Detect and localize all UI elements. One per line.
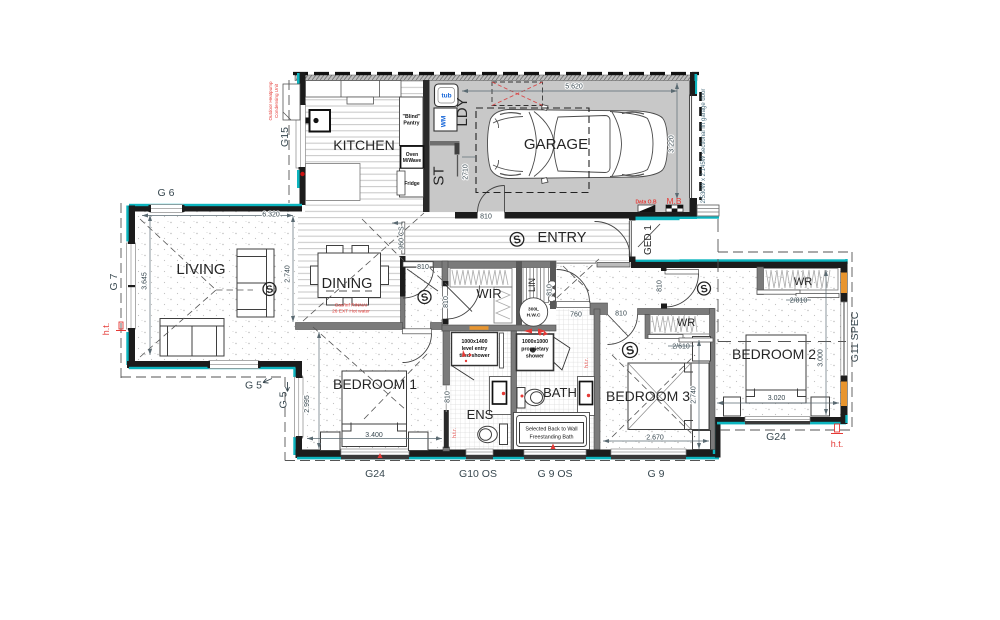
- svg-text:810: 810: [417, 264, 429, 271]
- svg-text:760: 760: [570, 312, 582, 319]
- svg-text:LIN: LIN: [527, 278, 537, 292]
- svg-text:G 7: G 7: [108, 273, 120, 290]
- svg-text:3.645: 3.645: [142, 272, 149, 290]
- svg-text:LDY: LDY: [454, 97, 471, 126]
- svg-text:WR: WR: [794, 276, 812, 288]
- svg-text:810: 810: [480, 214, 492, 221]
- svg-text:h.t.r.: h.t.r.: [584, 358, 590, 368]
- svg-text:2/530W x 2.145W sectional lift: 2/530W x 2.145W sectional lift garage do…: [701, 89, 707, 204]
- svg-text:G 6: G 6: [158, 187, 175, 199]
- svg-text:GED 1: GED 1: [643, 225, 654, 255]
- svg-text:BEDROOM 3: BEDROOM 3: [606, 388, 690, 404]
- svg-text:WR: WR: [677, 317, 695, 329]
- svg-text:3.000: 3.000: [818, 349, 825, 367]
- svg-text:G 9: G 9: [648, 468, 665, 480]
- svg-text:2/810: 2/810: [790, 298, 808, 305]
- svg-text:BEDROOM 1: BEDROOM 1: [333, 376, 417, 392]
- svg-text:WM: WM: [441, 116, 448, 128]
- svg-text:Selected Back to Wall: Selected Back to Wall: [525, 427, 577, 433]
- svg-text:810: 810: [657, 280, 664, 292]
- svg-text:Data O.B: Data O.B: [635, 200, 657, 206]
- svg-text:BATH: BATH: [543, 385, 577, 400]
- svg-text:Fridge: Fridge: [404, 181, 419, 187]
- svg-text:h.t.r.: h.t.r.: [452, 428, 458, 438]
- svg-text:2.670: 2.670: [646, 435, 664, 442]
- svg-text:KITCHEN: KITCHEN: [333, 137, 394, 153]
- svg-text:level entry: level entry: [462, 346, 488, 352]
- svg-text:BEDROOM 2: BEDROOM 2: [732, 346, 816, 362]
- svg-text:"Blind": "Blind": [403, 114, 421, 120]
- svg-text:Condensing Unit: Condensing Unit: [274, 83, 279, 118]
- svg-text:LIVING: LIVING: [176, 261, 225, 278]
- svg-text:G11 SPEC: G11 SPEC: [849, 311, 861, 362]
- svg-text:GARAGE: GARAGE: [524, 136, 588, 153]
- svg-text:shower: shower: [526, 354, 544, 360]
- svg-text:DINING: DINING: [322, 276, 373, 292]
- svg-text:Outdoor Heatpump: Outdoor Heatpump: [268, 81, 273, 121]
- svg-text:26 EXT Hot water: 26 EXT Hot water: [332, 309, 370, 315]
- svg-text:810: 810: [445, 391, 452, 403]
- svg-text:1000x1000: 1000x1000: [522, 339, 548, 345]
- svg-text:3.220: 3.220: [669, 135, 676, 153]
- svg-text:G10 OS: G10 OS: [459, 468, 497, 480]
- svg-text:M/Wave: M/Wave: [403, 158, 422, 164]
- svg-text:810: 810: [615, 311, 627, 318]
- svg-text:G24: G24: [365, 468, 385, 480]
- svg-text:M.B: M.B: [666, 196, 681, 206]
- svg-text:810: 810: [443, 296, 450, 308]
- svg-text:h.t.: h.t.: [831, 439, 844, 449]
- svg-text:WIR: WIR: [476, 286, 501, 301]
- svg-text:2.740: 2.740: [285, 265, 292, 283]
- svg-text:2.740: 2.740: [691, 386, 698, 404]
- svg-text:810: 810: [547, 284, 554, 296]
- svg-text:2.995: 2.995: [304, 395, 311, 413]
- svg-text:G 5: G 5: [278, 391, 290, 408]
- svg-text:6.320: 6.320: [262, 212, 280, 219]
- svg-text:ENS: ENS: [467, 407, 494, 422]
- svg-text:Freestanding Bath: Freestanding Bath: [529, 435, 573, 441]
- svg-text:300L: 300L: [528, 307, 539, 313]
- svg-text:G 5: G 5: [245, 380, 262, 392]
- svg-text:H.W.C: H.W.C: [527, 313, 541, 319]
- svg-text:Pantry: Pantry: [403, 121, 419, 127]
- svg-text:960 CS: 960 CS: [399, 226, 406, 250]
- svg-text:2710: 2710: [463, 164, 470, 180]
- svg-text:proprietary: proprietary: [521, 347, 549, 353]
- svg-text:3.020: 3.020: [768, 395, 786, 402]
- svg-text:Gas/inf RINNAI: Gas/inf RINNAI: [335, 303, 368, 309]
- svg-text:3.400: 3.400: [365, 432, 383, 439]
- svg-text:G24: G24: [766, 431, 786, 443]
- svg-text:G 9 OS: G 9 OS: [537, 468, 572, 480]
- svg-text:2/610: 2/610: [672, 344, 690, 351]
- svg-text:ST: ST: [431, 166, 448, 185]
- svg-text:ENTRY: ENTRY: [538, 230, 587, 246]
- svg-text:h.t.: h.t.: [101, 323, 111, 336]
- svg-text:5.620: 5.620: [565, 84, 583, 91]
- svg-text:tub: tub: [441, 93, 451, 100]
- svg-text:1000x1400: 1000x1400: [462, 339, 488, 345]
